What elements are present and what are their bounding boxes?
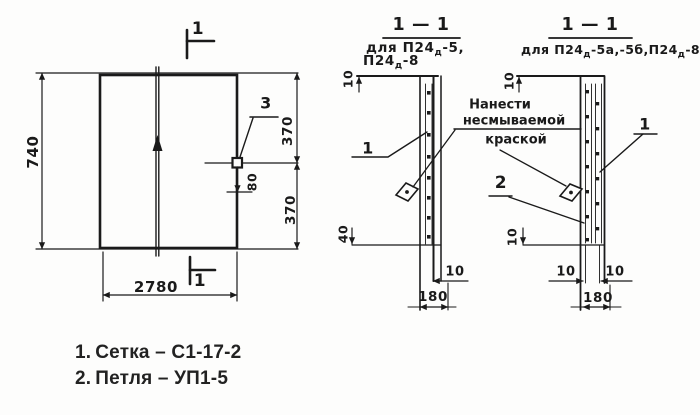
callout-1a-label: 1 [362,139,374,158]
dim-10-edge-a-label: 10 [445,265,464,280]
annotation-line1: Нанести [469,98,531,113]
legend: 1.Сетка – С1-17-2 2.Петля – УП1-5 [75,340,245,392]
legend-item-text: Петля – УП1-5 [95,368,228,389]
callout-3-label: 3 [260,94,272,113]
annotation-line3: краской [485,133,546,148]
dim-10-top-a-label: 10 [341,70,356,89]
section-a-title: 1 — 1 [392,15,449,35]
dim-10-left-b-label: 10 [556,265,575,280]
dim-10-mesh-b-label: 10 [505,228,520,247]
legend-item-text: Сетка – С1-17-2 [95,342,241,363]
section-mark-top-label: 1 [192,19,204,39]
section-line-arrow [153,135,163,151]
dim-370-top-label: 370 [280,116,296,146]
section-a-subtitle-line2: П24д-8 [363,53,419,71]
panel-outline [100,75,237,248]
legend-item: 2.Петля – УП1-5 [75,366,245,392]
dim-2780-label: 2780 [134,278,178,296]
mesh-dots-b [586,90,600,241]
section-b-title: 1 — 1 [561,15,618,35]
blueprint-canvas: 1 1 740 2780 370 80 370 3 1 — 1 для П24д… [0,0,700,415]
dim-80-label: 80 [245,173,260,192]
legend-item: 1.Сетка – С1-17-2 [75,340,245,366]
annotation-leader-right [500,150,566,186]
dim-180-a-label: 180 [418,289,448,305]
section-mark-bottom-label: 1 [194,271,206,291]
plan-view-lines [36,30,298,301]
annotation-line2: несмываемой [463,114,565,129]
callout-3-leader [240,118,253,157]
legend-item-number: 1. [75,342,91,363]
dim-370-bottom-label: 370 [283,195,299,225]
dim-740-label: 740 [24,135,42,168]
dim-10-right-b-label: 10 [605,265,624,280]
dim-10-top-b-label: 10 [502,72,517,91]
dim-180-b-label: 180 [583,290,613,306]
callout-1b-leader [600,134,643,172]
callout-2-label: 2 [495,173,507,193]
embed-detail-square [233,158,243,168]
dim-40-a-label: 40 [336,225,351,244]
section-b-subtitle: для П24д-5а,-5б,П24д-8а [521,42,700,60]
callout-1b-label: 1 [639,115,651,134]
legend-item-number: 2. [75,368,91,389]
